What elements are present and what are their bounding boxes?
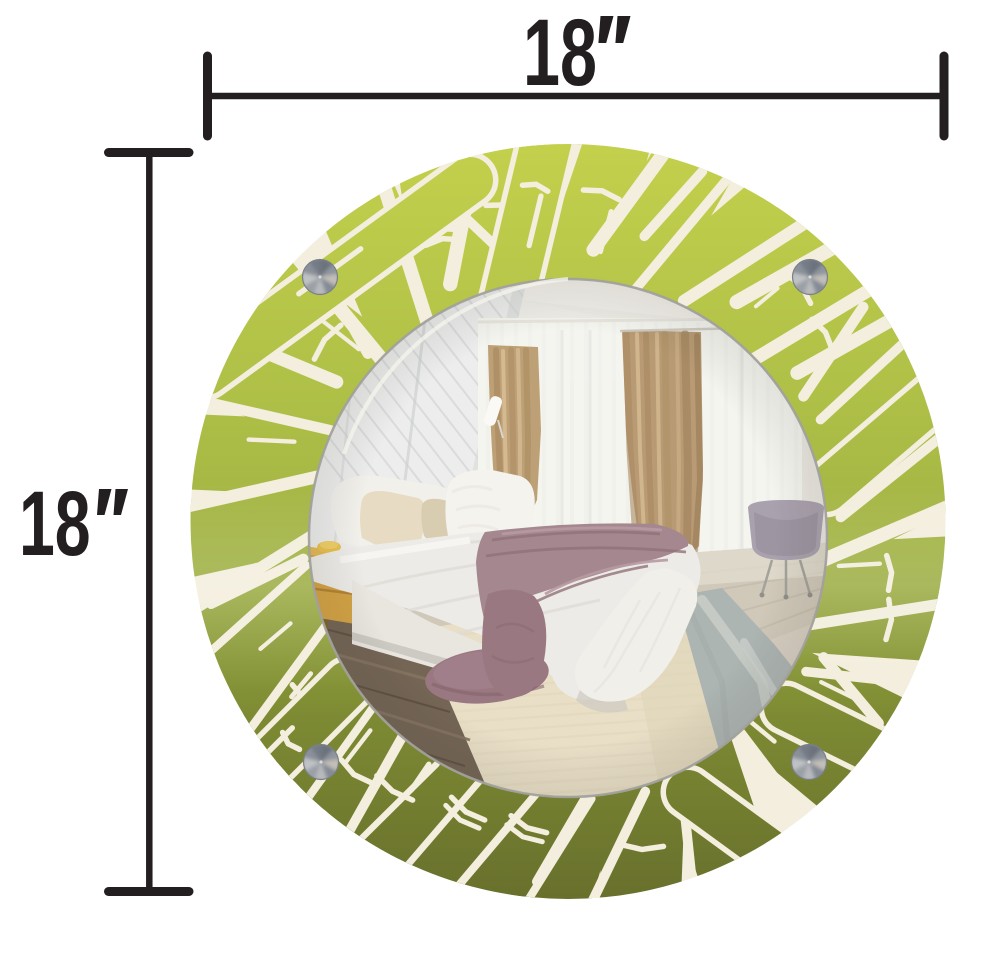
svg-text:18: 18 [19, 472, 91, 575]
svg-text:18: 18 [523, 0, 597, 105]
